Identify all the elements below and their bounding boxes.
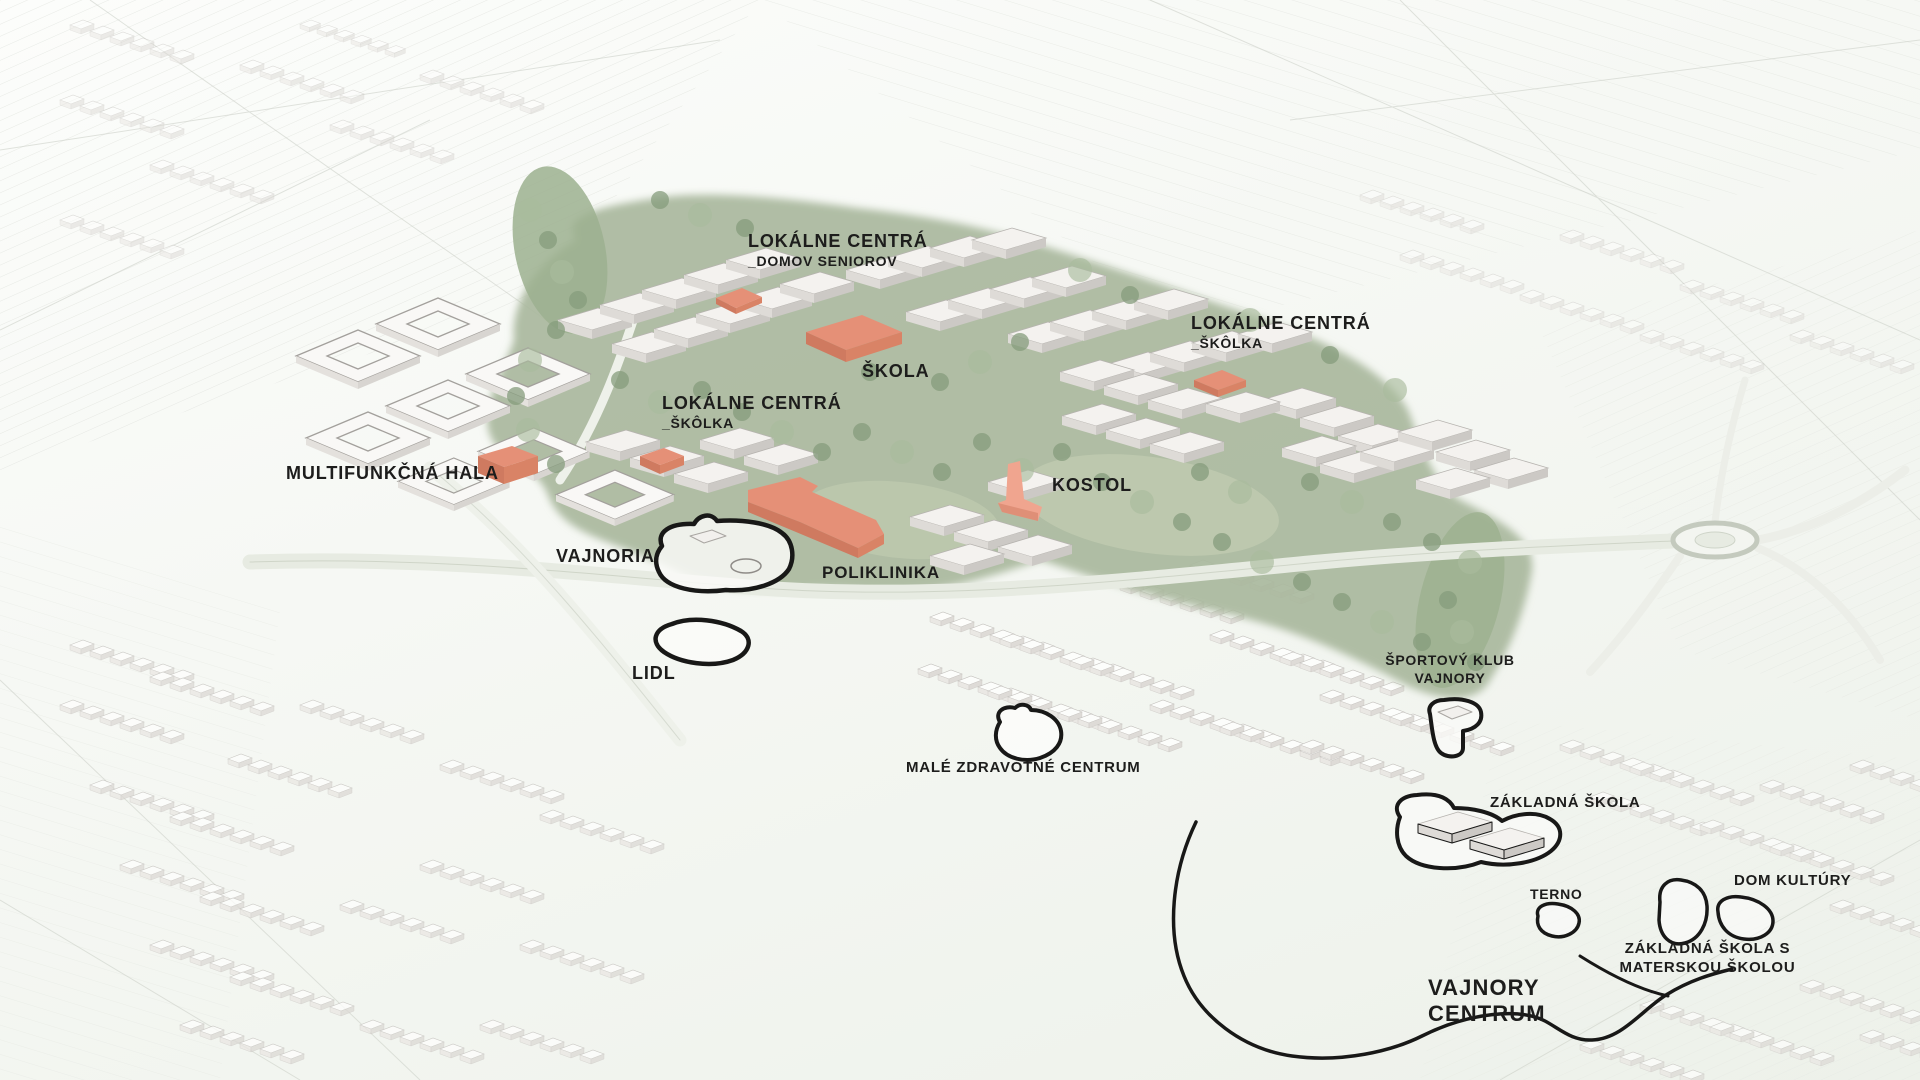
label-dom-kultury: DOM KULTÚRY xyxy=(1734,872,1851,891)
site-outline-terno xyxy=(1537,904,1579,937)
label-zakladna-skola: ZÁKLADNÁ ŠKOLA xyxy=(1490,794,1641,813)
label-line-1: LOKÁLNE CENTRÁ xyxy=(748,230,928,253)
label-lidl: LIDL xyxy=(632,662,676,685)
label-poliklinika: POLIKLINIKA xyxy=(822,562,940,583)
label-line-1: ZÁKLADNÁ ŠKOLA S xyxy=(1615,940,1800,959)
label-terno: TERNO xyxy=(1530,886,1583,904)
roundabout xyxy=(1673,523,1757,557)
label-skola: ŠKOLA xyxy=(862,360,930,383)
label-line-2: _ŠKÔLKA xyxy=(662,415,842,433)
label-lokalne-centra-domov-seniorov: LOKÁLNE CENTRÁ _DOMOV SENIOROV xyxy=(748,230,928,270)
label-sportovy-klub-vajnory: ŠPORTOVÝ KLUB VAJNORY xyxy=(1385,652,1515,687)
masterplan-rendering: LOKÁLNE CENTRÁ _DOMOV SENIOROV LOKÁLNE C… xyxy=(0,0,1920,1080)
label-line-1: LOKÁLNE CENTRÁ xyxy=(1191,312,1371,335)
label-line-2: VAJNORY xyxy=(1385,670,1515,688)
label-line-2: MATERSKOU ŠKOLOU xyxy=(1615,959,1800,978)
label-vajnory-centrum: VAJNORY CENTRUM xyxy=(1428,975,1546,1028)
label-line-1: ŠPORTOVÝ KLUB xyxy=(1385,652,1515,670)
site-outline-vajnoria xyxy=(656,516,792,592)
label-line-2: CENTRUM xyxy=(1428,1001,1546,1027)
site-outline-dom-kultury-west xyxy=(1659,880,1707,944)
label-line-1: VAJNORY xyxy=(1428,975,1546,1001)
label-kostol: KOSTOL xyxy=(1052,474,1132,497)
label-line-2: _DOMOV SENIOROV xyxy=(748,253,928,271)
site-outline-sportovy-klub xyxy=(1429,699,1481,756)
label-lokalne-centra-skolka-west: LOKÁLNE CENTRÁ _ŠKÔLKA xyxy=(662,392,842,432)
label-line-2: _ŠKÔLKA xyxy=(1191,335,1371,353)
site-outline-lidl xyxy=(656,620,749,664)
label-line-1: LOKÁLNE CENTRÁ xyxy=(662,392,842,415)
label-lokalne-centra-skolka-east: LOKÁLNE CENTRÁ _ŠKÔLKA xyxy=(1191,312,1371,352)
label-male-zdravotne-centrum: MALÉ ZDRAVOTNÉ CENTRUM xyxy=(906,759,1141,778)
label-multifunkcna-hala: MULTIFUNKČNÁ HALA xyxy=(286,462,499,485)
label-zakladna-skola-s-materskou-skolou: ZÁKLADNÁ ŠKOLA S MATERSKOU ŠKOLOU xyxy=(1615,940,1800,978)
masterplan-illustration xyxy=(0,0,1920,1080)
label-vajnoria: VAJNORIA xyxy=(556,545,655,568)
